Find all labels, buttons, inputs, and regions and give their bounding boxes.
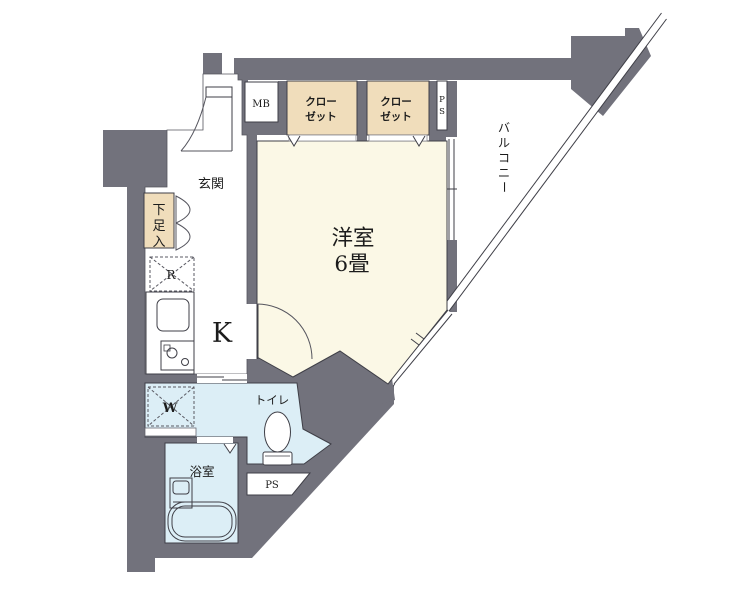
label-kitchen: K [212, 318, 233, 349]
label-closet-2-line1: クロー [380, 96, 412, 108]
sink [157, 299, 189, 331]
window-right [446, 137, 457, 240]
label-closet-2-line2: ゼット [380, 110, 412, 123]
label-closet-1-line2: ゼット [305, 110, 337, 123]
bathroom-door [197, 437, 233, 443]
label-shoe-cabinet: 下 足 入 [152, 203, 165, 250]
label-pipe-space-top-p: P [439, 95, 445, 105]
wall-bottom-foot [127, 558, 155, 572]
svg-text:入: 入 [152, 235, 165, 250]
closet-2-box [367, 81, 429, 135]
pipe-space-top-box [437, 81, 447, 130]
label-pipe-space-bottom: PS [265, 480, 279, 491]
wall-closet2-right [429, 81, 437, 141]
label-closet-1-line1: クロー [305, 96, 337, 108]
floor-plan-page: 洋室 6畳 K 玄関 トイレ 浴室 クロー ゼット クロー ゼット MB P S… [0, 0, 740, 596]
room-bathroom-floor [165, 443, 238, 543]
entry-door-opening [222, 57, 234, 75]
label-pipe-space-top-s: S [439, 107, 445, 117]
label-balcony: バ ル コ ニ ー [497, 121, 511, 193]
main-room-door-opening [246, 304, 257, 359]
label-main-room-name: 洋室 [331, 226, 374, 251]
label-bathroom: 浴室 [189, 464, 214, 479]
wall-top-strip [222, 58, 571, 80]
svg-text:ニ: ニ [498, 166, 510, 180]
svg-text:ル: ル [498, 136, 510, 150]
kitchen-wet-sliding-door [197, 374, 247, 383]
svg-text:下: 下 [152, 203, 165, 218]
label-toilet: トイレ [255, 393, 290, 407]
svg-text:足: 足 [152, 219, 165, 234]
label-refrigerator: R [166, 268, 176, 282]
svg-text:ー: ー [497, 181, 511, 193]
toilet-fixture [263, 412, 292, 465]
wall-top-right-blob [571, 28, 651, 116]
svg-text:バ: バ [498, 121, 510, 135]
label-meter-box: MB [252, 99, 270, 110]
label-washer: W [162, 401, 178, 416]
wall-closet-divider [357, 81, 367, 141]
wall-top-step [203, 53, 222, 74]
closet-1-box [287, 81, 357, 135]
floor-plan-canvas: 洋室 6畳 K 玄関 トイレ 浴室 クロー ゼット クロー ゼット MB P S… [0, 0, 740, 596]
wall-mb-right [278, 81, 287, 125]
label-entrance: 玄関 [198, 177, 224, 192]
svg-text:コ: コ [498, 151, 510, 165]
kitchen-counter [146, 292, 194, 374]
label-main-room-size: 6畳 [334, 252, 369, 277]
washer-threshold [145, 428, 196, 436]
